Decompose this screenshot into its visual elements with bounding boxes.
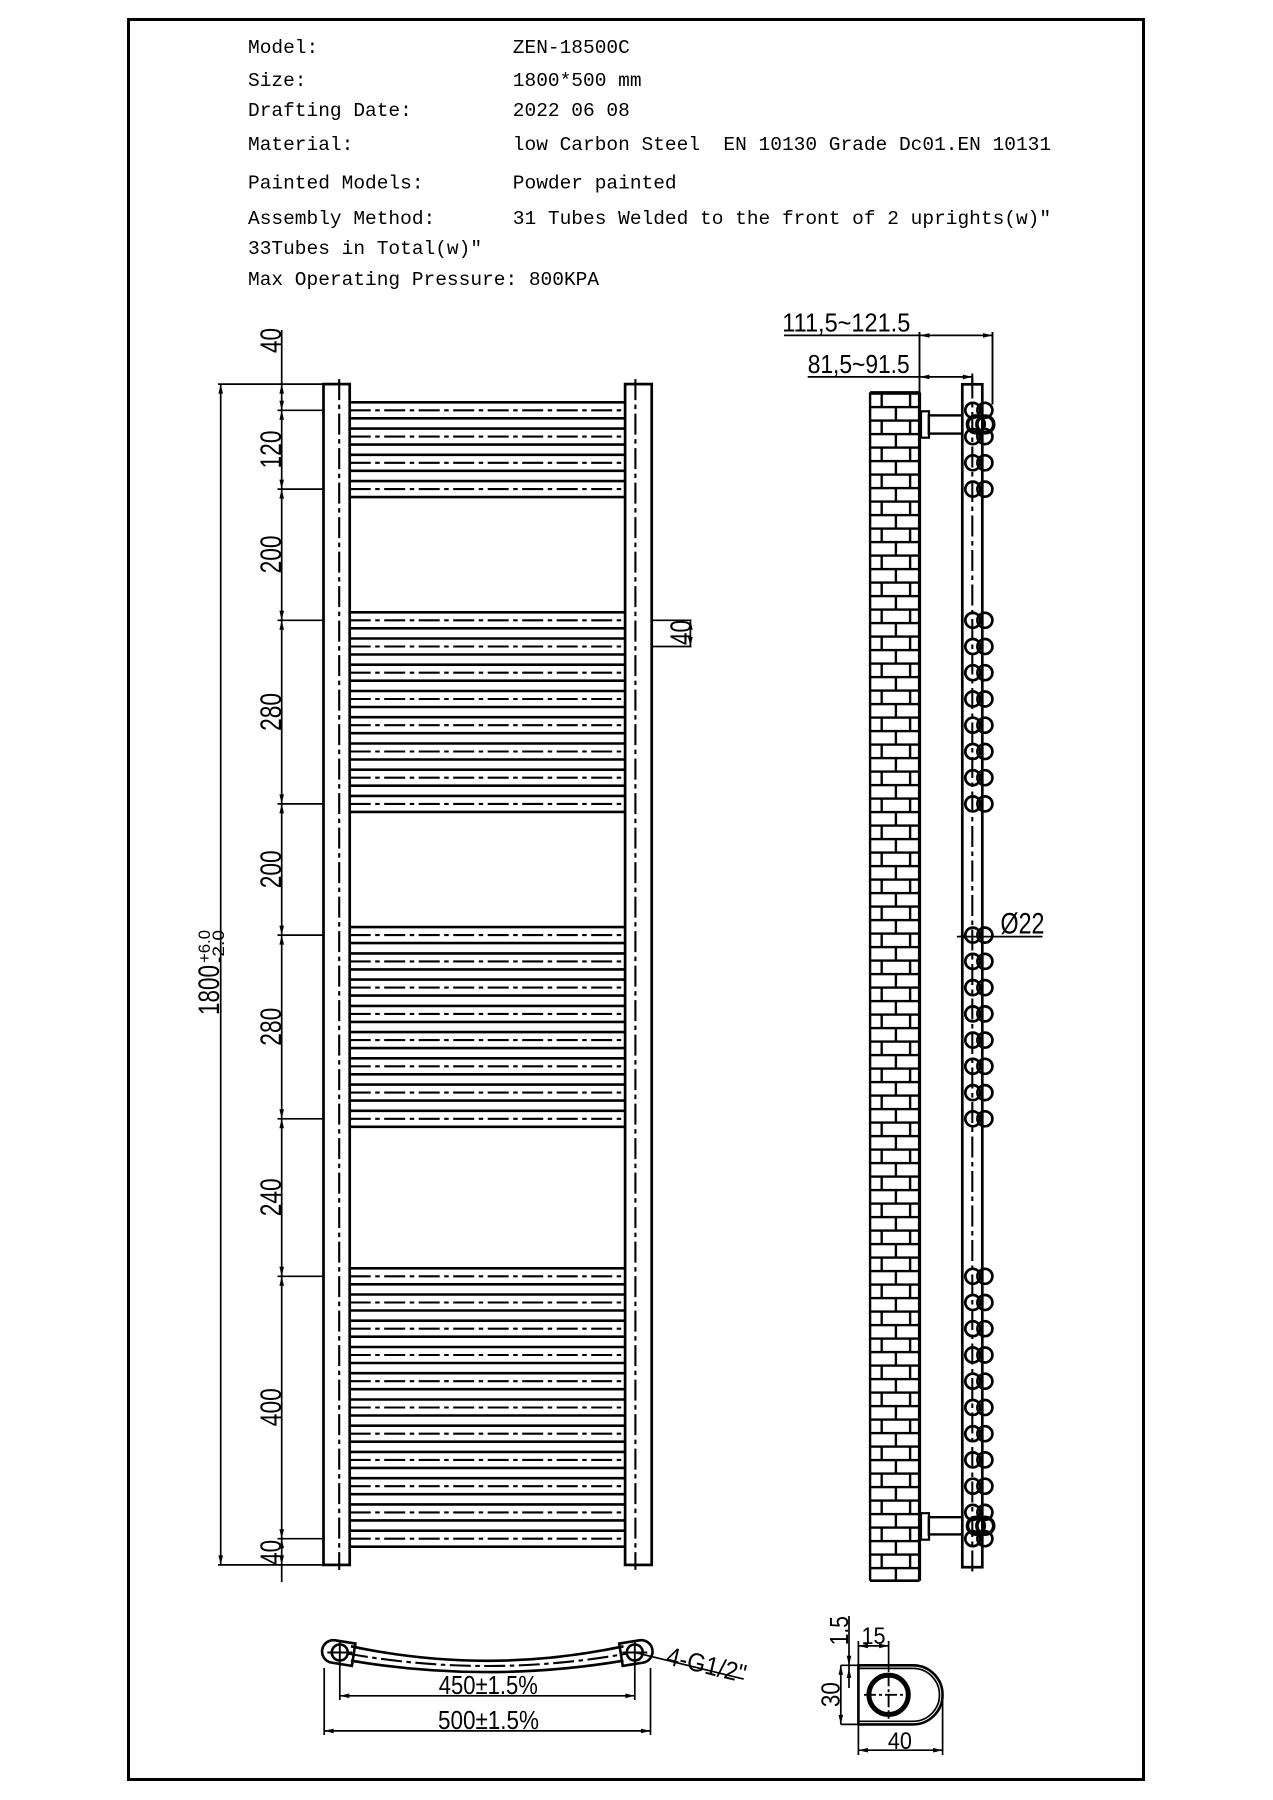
svg-text:81,5~91.5: 81,5~91.5 xyxy=(808,349,910,379)
svg-text:Size:: Size: xyxy=(248,70,307,92)
svg-text:33Tubes in Total(w)": 33Tubes in Total(w)" xyxy=(248,238,482,260)
svg-text:1800: 1800 xyxy=(193,965,226,1015)
svg-text:280: 280 xyxy=(255,693,288,731)
svg-text:111,5~121.5: 111,5~121.5 xyxy=(782,308,910,338)
svg-text:500±1.5%: 500±1.5% xyxy=(438,1705,539,1735)
svg-text:low Carbon Steel EN 10130 Gra: low Carbon Steel EN 10130 Grade Dc01.EN … xyxy=(513,134,1051,156)
svg-text:Material:: Material: xyxy=(248,134,353,156)
svg-text:40: 40 xyxy=(888,1728,912,1755)
svg-text:1.5: 1.5 xyxy=(824,1616,854,1645)
svg-text:Painted Models:: Painted Models: xyxy=(248,173,424,195)
svg-text:40: 40 xyxy=(255,328,288,353)
svg-text:Ø22: Ø22 xyxy=(1001,908,1045,941)
svg-text:31 Tubes Welded to the front o: 31 Tubes Welded to the front of 2 uprigh… xyxy=(513,208,1051,230)
svg-text:Max Operating Pressure: 800KPA: Max Operating Pressure: 800KPA xyxy=(248,269,599,291)
svg-text:400: 400 xyxy=(255,1388,288,1426)
svg-text:Model:: Model: xyxy=(248,37,318,59)
svg-text:200: 200 xyxy=(255,535,288,573)
svg-text:1800*500 mm: 1800*500 mm xyxy=(513,70,642,92)
svg-text:30: 30 xyxy=(816,1682,846,1707)
svg-text:40: 40 xyxy=(255,1540,288,1565)
svg-text:450±1.5%: 450±1.5% xyxy=(439,1670,538,1700)
svg-text:240: 240 xyxy=(255,1178,288,1216)
svg-text:120: 120 xyxy=(255,431,288,469)
svg-text:200: 200 xyxy=(255,850,288,888)
svg-text:15: 15 xyxy=(862,1623,886,1650)
svg-text:40: 40 xyxy=(665,620,698,645)
svg-text:280: 280 xyxy=(255,1008,288,1046)
svg-text:ZEN-18500C: ZEN-18500C xyxy=(513,37,630,59)
svg-text:-2.0: -2.0 xyxy=(210,930,228,963)
svg-text:Assembly Method:: Assembly Method: xyxy=(248,208,435,230)
svg-text:Powder painted: Powder painted xyxy=(513,173,677,195)
svg-text:Drafting Date:: Drafting Date: xyxy=(248,100,412,122)
svg-text:2022 06 08: 2022 06 08 xyxy=(513,100,630,122)
